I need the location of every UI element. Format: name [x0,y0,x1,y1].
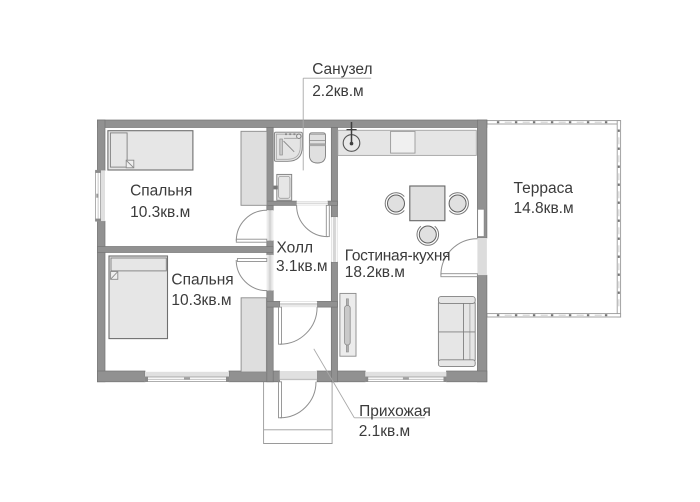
svg-text:10.3кв.м: 10.3кв.м [171,292,231,309]
svg-text:18.2кв.м: 18.2кв.м [345,264,405,281]
svg-text:14.8кв.м: 14.8кв.м [514,200,574,217]
svg-text:Спальня: Спальня [130,182,192,199]
svg-text:Прихожая: Прихожая [359,403,431,420]
svg-text:2.2кв.м: 2.2кв.м [312,83,364,100]
svg-text:Холл: Холл [277,239,314,256]
svg-text:2.1кв.м: 2.1кв.м [359,423,411,440]
svg-text:10.3кв.м: 10.3кв.м [130,204,190,221]
svg-text:Санузел: Санузел [312,61,372,78]
svg-text:Терраса: Терраса [514,180,574,197]
svg-text:Гостиная-кухня: Гостиная-кухня [345,248,450,265]
svg-text:Спальня: Спальня [171,271,233,288]
svg-text:3.1кв.м: 3.1кв.м [276,258,328,275]
